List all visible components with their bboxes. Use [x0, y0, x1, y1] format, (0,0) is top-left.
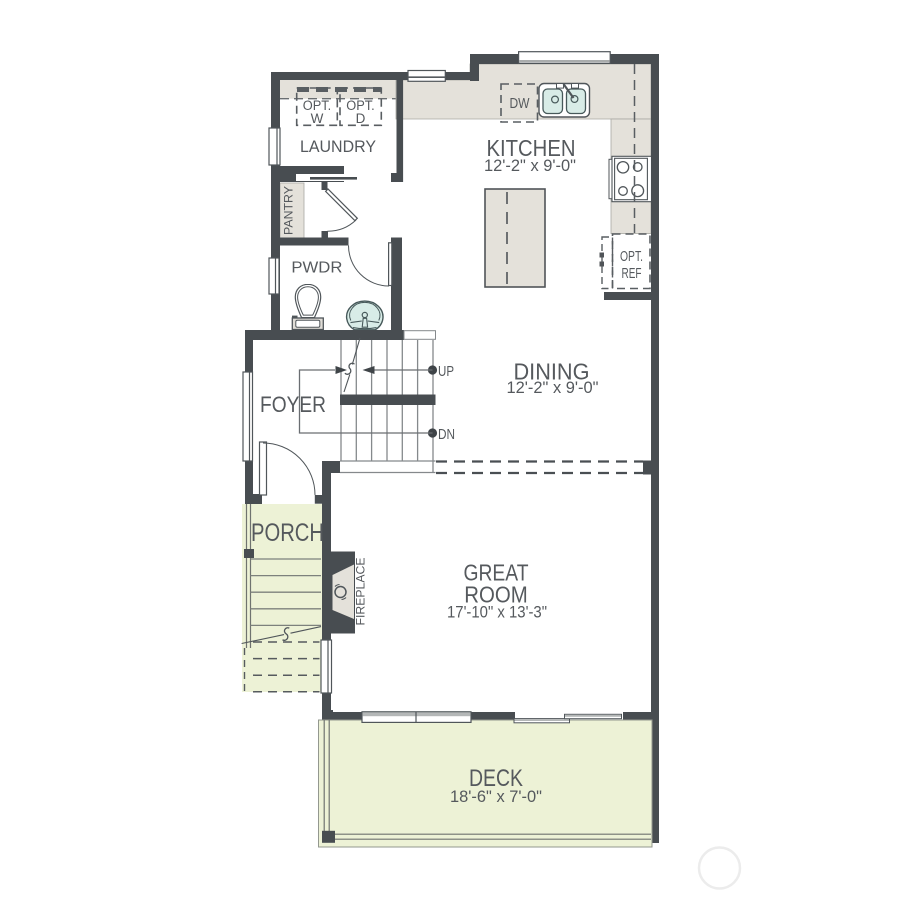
svg-text:LAUNDRY: LAUNDRY: [300, 138, 376, 156]
svg-text:18'-6" x 7'-0": 18'-6" x 7'-0": [450, 788, 542, 806]
svg-text:FOYER: FOYER: [260, 392, 326, 417]
svg-text:DN: DN: [438, 426, 455, 443]
svg-text:PORCH: PORCH: [251, 519, 324, 547]
svg-text:PANTRY: PANTRY: [282, 186, 296, 235]
svg-text:REF: REF: [622, 266, 642, 282]
svg-text:DW: DW: [510, 96, 530, 112]
svg-text:FIREPLACE: FIREPLACE: [354, 558, 368, 626]
svg-text:OPT.: OPT.: [620, 249, 643, 265]
svg-text:PWDR: PWDR: [291, 260, 342, 277]
svg-text:12'-2" x 9'-0": 12'-2" x 9'-0": [484, 157, 576, 175]
svg-text:D: D: [356, 111, 366, 126]
svg-text:W: W: [311, 111, 324, 126]
svg-text:12'-2" x 9'-0": 12'-2" x 9'-0": [507, 379, 599, 397]
svg-text:UP: UP: [438, 363, 454, 380]
svg-text:17'-10" x 13'-3": 17'-10" x 13'-3": [447, 604, 547, 622]
